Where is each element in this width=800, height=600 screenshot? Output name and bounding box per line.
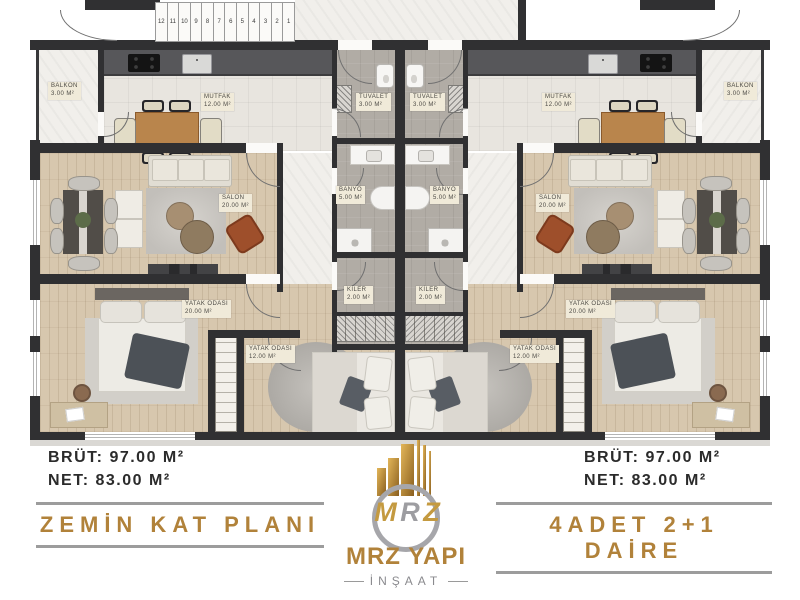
basin-bowl bbox=[418, 150, 434, 162]
door-gap bbox=[463, 168, 468, 194]
chair bbox=[736, 198, 750, 224]
wall bbox=[237, 332, 244, 432]
tv-console bbox=[148, 264, 218, 274]
sofa-cushion bbox=[622, 159, 648, 181]
chair bbox=[68, 256, 100, 271]
sofa bbox=[568, 155, 652, 187]
subtitle-text: İNŞAAT bbox=[370, 574, 442, 588]
room-label-kiler-left: KİLER2.00 M² bbox=[344, 286, 373, 304]
window bbox=[30, 352, 40, 396]
divider-line bbox=[36, 502, 324, 505]
coffee-table bbox=[586, 220, 620, 254]
right-title-block: 4ADET 2+1 DAİRE bbox=[496, 502, 772, 574]
stair-step: 9 bbox=[191, 3, 203, 41]
coffee-table bbox=[180, 220, 214, 254]
stair-step: 5 bbox=[237, 3, 249, 41]
stair-step: 3 bbox=[260, 3, 272, 41]
wall bbox=[332, 138, 395, 144]
window bbox=[760, 180, 770, 245]
sideboard bbox=[657, 190, 685, 248]
wall bbox=[332, 312, 395, 316]
sofa-cushion bbox=[570, 159, 596, 181]
chair bbox=[68, 176, 100, 191]
chair bbox=[578, 118, 600, 146]
single-bed bbox=[405, 352, 488, 434]
logo-monogram: M R Z bbox=[326, 497, 486, 528]
stove bbox=[640, 54, 672, 72]
stair-step: 12 bbox=[156, 3, 168, 41]
wall bbox=[405, 138, 468, 144]
floor-plan-page: 12 11 10 9 8 7 6 5 4 3 2 1 bbox=[0, 0, 800, 600]
company-logo: M R Z MRZ YAPI İNŞAAT bbox=[326, 440, 486, 598]
wall bbox=[332, 252, 395, 258]
basin-bowl bbox=[366, 150, 382, 162]
bathtub bbox=[370, 186, 395, 210]
chair bbox=[682, 198, 696, 224]
divider-line bbox=[496, 502, 772, 505]
kitchen-sink bbox=[588, 54, 618, 74]
unit-count-title: 4ADET 2+1 DAİRE bbox=[496, 512, 772, 564]
desk-paper bbox=[715, 407, 735, 422]
unit-left bbox=[30, 8, 400, 440]
sofa-cushion bbox=[178, 159, 204, 181]
wardrobe bbox=[563, 332, 585, 432]
room-label-balkon-right: BALKON3.00 M² bbox=[724, 82, 757, 100]
wall bbox=[463, 50, 468, 352]
chair bbox=[142, 100, 164, 112]
washbasin bbox=[350, 145, 395, 165]
desk-chair bbox=[709, 384, 727, 402]
washbasin bbox=[405, 145, 450, 165]
company-subtitle: İNŞAAT bbox=[326, 574, 486, 588]
pillow bbox=[614, 301, 656, 323]
wall bbox=[500, 330, 592, 338]
monogram-letter: R bbox=[400, 497, 418, 527]
chair bbox=[104, 228, 118, 254]
stair-step: 11 bbox=[168, 3, 180, 41]
toilet bbox=[376, 64, 394, 88]
sofa bbox=[148, 155, 232, 187]
room-label-mutfak-left: MUTFAK12.00 M² bbox=[201, 93, 234, 111]
door-swing bbox=[60, 10, 117, 41]
sofa-cushion bbox=[596, 159, 622, 181]
chair bbox=[682, 228, 696, 254]
entry-staircase: 12 11 10 9 8 7 6 5 4 3 2 1 bbox=[155, 2, 295, 42]
pillow bbox=[363, 396, 392, 431]
room-label-salon-left: SALON20.00 M² bbox=[219, 194, 252, 212]
room-label-yatak-kucuk-right: YATAK ODASI12.00 M² bbox=[510, 345, 559, 363]
left-title-block: ZEMİN KAT PLANI bbox=[36, 502, 324, 548]
chair bbox=[50, 198, 64, 224]
door-gap bbox=[338, 40, 372, 50]
chair bbox=[736, 228, 750, 254]
room-label-yatak-buyuk-left: YATAK ODASI20.00 M² bbox=[182, 300, 231, 318]
chair bbox=[700, 176, 732, 191]
room-label-salon-right: SALON20.00 M² bbox=[536, 194, 569, 212]
window bbox=[760, 352, 770, 396]
desk-paper bbox=[65, 407, 85, 422]
wall bbox=[332, 344, 395, 350]
toilet bbox=[406, 64, 424, 88]
wall bbox=[585, 332, 592, 432]
plan-title: ZEMİN KAT PLANI bbox=[36, 512, 324, 538]
kitchen-sink bbox=[182, 54, 212, 74]
window bbox=[605, 432, 715, 440]
bed-headboard bbox=[611, 288, 705, 300]
chair bbox=[200, 118, 222, 146]
room-label-yatak-buyuk-right: YATAK ODASI20.00 M² bbox=[566, 300, 615, 318]
net-area-right: NET: 83.00 M² bbox=[584, 469, 721, 492]
pillow bbox=[363, 356, 393, 393]
left-unit-stats: BRÜT: 97.00 M² NET: 83.00 M² bbox=[48, 446, 185, 492]
tv-console bbox=[582, 264, 652, 274]
chair bbox=[636, 100, 658, 112]
door-gap bbox=[696, 112, 702, 136]
divider-line bbox=[496, 571, 772, 574]
brut-area-right: BRÜT: 97.00 M² bbox=[584, 446, 721, 469]
sofa-cushion bbox=[152, 159, 178, 181]
pillow bbox=[144, 301, 186, 323]
stair-step: 1 bbox=[283, 3, 294, 41]
stair-step: 10 bbox=[179, 3, 191, 41]
wall bbox=[517, 143, 770, 153]
chair bbox=[609, 100, 631, 112]
single-bed bbox=[312, 352, 395, 434]
door-swing bbox=[683, 10, 740, 41]
window bbox=[85, 432, 195, 440]
right-unit-stats: BRÜT: 97.00 M² NET: 83.00 M² bbox=[584, 446, 721, 492]
wall bbox=[208, 332, 215, 432]
core-staircase bbox=[334, 315, 395, 342]
chair bbox=[104, 198, 118, 224]
monogram-letter: M bbox=[374, 497, 395, 527]
room-label-yatak-kucuk-left: YATAK ODASI12.00 M² bbox=[246, 345, 295, 363]
stair-step: 4 bbox=[249, 3, 261, 41]
stair-step: 6 bbox=[225, 3, 237, 41]
party-wall bbox=[400, 40, 405, 440]
stair-step: 7 bbox=[214, 3, 226, 41]
door-gap bbox=[520, 274, 554, 284]
door-gap bbox=[520, 143, 554, 153]
room-label-tuvalet-right: TUVALET3.00 M² bbox=[410, 93, 445, 111]
table-plant bbox=[709, 212, 725, 228]
sideboard bbox=[115, 190, 143, 248]
pillow bbox=[407, 356, 437, 393]
desk-chair bbox=[73, 384, 91, 402]
chair bbox=[700, 256, 732, 271]
wall bbox=[405, 312, 468, 316]
stair-step: 8 bbox=[202, 3, 214, 41]
dash-line bbox=[448, 581, 468, 582]
stove bbox=[128, 54, 160, 72]
monogram-letter: Z bbox=[423, 497, 438, 527]
pillow bbox=[407, 396, 436, 431]
unit-right bbox=[400, 8, 770, 440]
chair bbox=[169, 100, 191, 112]
room-label-mutfak-right: MUTFAK12.00 M² bbox=[542, 93, 575, 111]
bathtub bbox=[405, 186, 430, 210]
divider-line bbox=[36, 545, 324, 548]
wall bbox=[517, 274, 770, 284]
window bbox=[30, 180, 40, 245]
sofa-cushion bbox=[204, 159, 230, 181]
room-label-kiler-right: KİLER2.00 M² bbox=[416, 286, 445, 304]
company-name: MRZ YAPI bbox=[326, 543, 486, 571]
room-label-banyo-left: BANYO5.00 M² bbox=[336, 186, 365, 204]
core-staircase bbox=[405, 315, 466, 342]
wall bbox=[208, 330, 300, 338]
bed-headboard bbox=[95, 288, 189, 300]
room-label-tuvalet-left: TUVALET3.00 M² bbox=[356, 93, 391, 111]
window bbox=[760, 300, 770, 336]
chair bbox=[50, 228, 64, 254]
wall bbox=[405, 252, 468, 258]
pillow bbox=[100, 301, 142, 323]
wardrobe bbox=[215, 332, 237, 432]
room-label-balkon-left: BALKON3.00 M² bbox=[48, 82, 81, 100]
wall bbox=[405, 344, 468, 350]
wall bbox=[696, 50, 702, 152]
pillow bbox=[658, 301, 700, 323]
room-label-banyo-right: BANYO5.00 M² bbox=[430, 186, 459, 204]
door-gap bbox=[463, 262, 468, 290]
brut-area-left: BRÜT: 97.00 M² bbox=[48, 446, 185, 469]
door-gap bbox=[246, 143, 280, 153]
net-area-left: NET: 83.00 M² bbox=[48, 469, 185, 492]
door-gap bbox=[246, 274, 280, 284]
window bbox=[30, 300, 40, 336]
table-plant bbox=[75, 212, 91, 228]
door-gap bbox=[428, 40, 462, 50]
dash-line bbox=[344, 581, 364, 582]
stair-step: 2 bbox=[272, 3, 284, 41]
